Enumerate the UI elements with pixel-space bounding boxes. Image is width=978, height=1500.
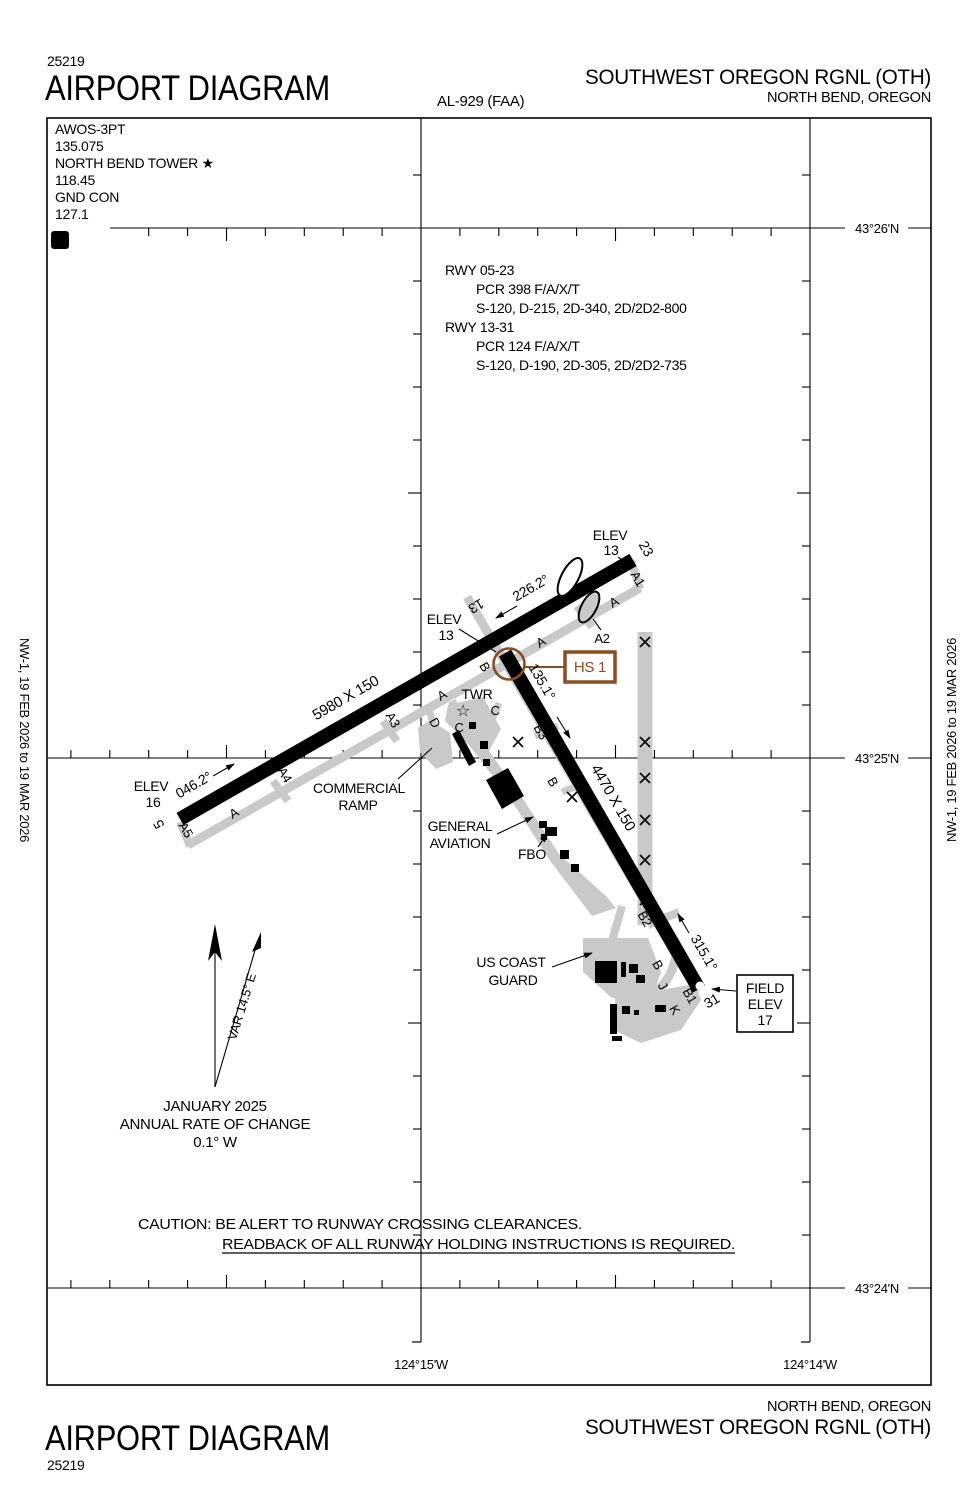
taxiway-b-label: B [544,774,561,789]
compass-rose: VAR 14.5° E JANUARY 2025 ANNUAL RATE OF … [120,924,311,1151]
al-number: AL-929 (FAA) [437,93,525,110]
header: 25219 AIRPORT DIAGRAM AL-929 (FAA) SOUTH… [45,53,931,110]
taxiway-c-label: C [454,720,463,735]
runway-annotations: 5980 X 150 046.2° 226.2° 5 23 4470 X 150… [134,527,793,1032]
airport-diagram-page: 25219 AIRPORT DIAGRAM AL-929 (FAA) SOUTH… [0,0,978,1500]
field-elev-l2: ELEV [748,996,784,1012]
annual-rate-label: ANNUAL RATE OF CHANGE [120,1116,311,1133]
building-uscg [621,962,626,977]
magnetic-north-arrowhead [252,932,261,952]
runway-05-23 [180,560,633,819]
building [571,864,579,872]
building-fbo [539,821,547,828]
elev-23-label: ELEV [593,527,629,543]
taxiway-a [188,588,640,845]
lat-label-43-24: 43°24'N [855,1281,899,1296]
uscg-stub [612,906,622,941]
airport-name-header: SOUTHWEST OREGON RGNL (OTH) [585,66,931,89]
chart-code-bottom: 25219 [47,1457,85,1473]
airport-city-footer: NORTH BEND, OREGON [767,1398,931,1415]
field-elev-l1: FIELD [746,980,784,996]
building [560,850,569,859]
annual-rate-value: 0.1° W [193,1134,238,1151]
edge-date-right: NW-1, 19 FEB 2026 to 19 MAR 2026 [944,638,959,842]
elev-13-value: 13 [439,627,454,643]
elev-13-label: ELEV [427,611,463,627]
building [610,1004,617,1034]
tower-star-icon: ☆ [456,703,470,720]
rwy-1331-title: RWY 13-31 [445,319,515,335]
uscg-label-1: US COAST [476,954,546,970]
comm-frequencies: AWOS-3PT 135.075 NORTH BEND TOWER ★ 118.… [51,121,214,249]
caution-line-2: READBACK OF ALL RUNWAY HOLDING INSTRUCTI… [222,1236,735,1253]
elev-05-value: 16 [146,794,161,810]
magnetic-variation-label: VAR 14.5° E [224,971,259,1042]
comm-gnd: GND CON [55,189,119,205]
elev-23-value: 13 [604,542,619,558]
rwy-05-number: 5 [150,817,168,832]
building [622,1006,630,1014]
building [480,741,488,749]
runway-31-end-dot [696,982,705,991]
comm-awos-freq: 135.075 [55,138,104,154]
airport-diagram-chart: 25219 AIRPORT DIAGRAM AL-929 (FAA) SOUTH… [0,0,978,1500]
rwy-23-number: 23 [636,538,658,559]
tower-label: TWR [462,686,493,702]
comm-tower-freq: 118.45 [55,172,95,188]
footer: NORTH BEND, OREGON SOUTHWEST OREGON RGNL… [45,1398,931,1473]
rwy-31-number: 31 [701,990,722,1012]
building [634,1010,639,1015]
airport-name-footer: SOUTHWEST OREGON RGNL (OTH) [585,1416,931,1439]
commercial-ramp-label-2: RAMP [338,797,377,813]
commercial-ramp-label-1: COMMERCIAL [313,780,405,796]
lat-label-43-25: 43°25'N [855,751,899,766]
building [469,722,476,729]
hotspot-label: HS 1 [574,659,606,676]
airport-city-header: NORTH BEND, OREGON [767,89,931,106]
chart-code-top: 25219 [47,53,85,69]
rwy-23-heading: 226.2° [510,571,552,604]
comm-tower: NORTH BEND TOWER ★ [55,155,214,171]
lon-label-124-15: 124°15'W [394,1357,449,1372]
rwy-1331-pcr: PCR 124 F/A/X/T [476,338,580,354]
taxiway-a2-label: A2 [594,631,609,646]
building [483,759,490,766]
rwy-0523-title: RWY 05-23 [445,262,515,278]
page-title: AIRPORT DIAGRAM [45,69,330,108]
comm-gnd-freq: 127.1 [55,206,89,222]
general-aviation-label-1: GENERAL [428,818,493,834]
building-uscg [595,961,617,983]
elev-05-label: ELEV [134,778,170,794]
edge-date-left: NW-1, 19 FEB 2026 to 19 MAR 2026 [17,638,32,842]
uscg-label-2: GUARD [488,972,537,988]
caution-note: CAUTION: BE ALERT TO RUNWAY CROSSING CLE… [138,1216,735,1253]
building [612,1036,622,1041]
variation-date: JANUARY 2025 [163,1098,266,1115]
page-title-footer: AIRPORT DIAGRAM [45,1419,330,1458]
field-elev-l3: 17 [758,1012,773,1028]
hotspot-d-letter: D [55,233,64,248]
comm-awos: AWOS-3PT [55,121,126,137]
caution-line-1: CAUTION: BE ALERT TO RUNWAY CROSSING CLE… [138,1216,582,1233]
taxiway-c-label: C [490,703,499,718]
building-uscg [629,964,638,973]
building-uscg [636,975,645,983]
lat-label-43-26: 43°26'N [855,221,899,236]
rwy-0523-strength: S-120, D-215, 2D-340, 2D/2D2-800 [476,300,687,316]
fbo-label: FBO [518,846,546,862]
building [655,1005,666,1012]
rwy-1331-strength: S-120, D-190, 2D-305, 2D/2D2-735 [476,357,687,373]
lon-label-124-14: 124°14'W [783,1357,838,1372]
runway-data-block: RWY 05-23 PCR 398 F/A/X/T S-120, D-215, … [445,262,687,373]
general-aviation-label-2: AVIATION [430,835,491,851]
rwy-0523-pcr: PCR 398 F/A/X/T [476,281,580,297]
